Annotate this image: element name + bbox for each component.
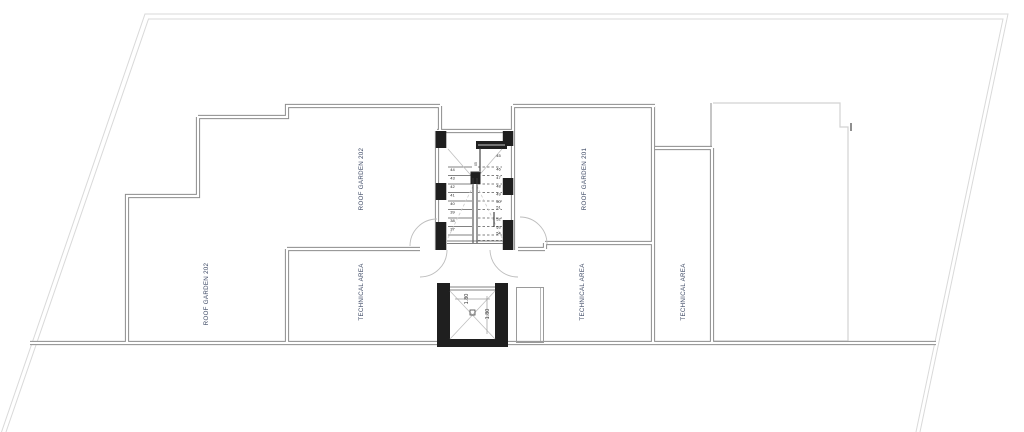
- door-arc-garden-202: [410, 219, 437, 246]
- stair-step-number: 52: [496, 217, 501, 222]
- room-label: ROOF GARDEN 202: [203, 262, 210, 325]
- stair-step-number: 40: [450, 201, 455, 206]
- stair-column: [436, 222, 447, 250]
- stair-step-number: 53: [496, 225, 501, 230]
- elevator-wall-left: [437, 283, 450, 347]
- stair-column: [436, 131, 447, 148]
- stair-direction-mark: 05: [474, 162, 478, 166]
- stair-column: [503, 178, 514, 195]
- stair-step-number: 48: [496, 184, 501, 189]
- door-arc-garden-201: [520, 217, 547, 244]
- stair-step-number: 41: [450, 193, 455, 198]
- neighbor-outline: [711, 103, 851, 341]
- door-arc-landing-left: [420, 250, 447, 277]
- dimension-label: 1.80: [464, 294, 470, 305]
- room-label: TECHNICAL AREA: [579, 263, 586, 321]
- elevator-door-lines: [450, 287, 495, 290]
- room-label: ROOF GARDEN 202: [358, 147, 365, 210]
- stair-step-number: 42: [450, 184, 455, 189]
- stair-break-diagonal-dashed: [448, 182, 502, 238]
- dimension-label: 1.80: [485, 309, 491, 320]
- duct-shaft: [517, 288, 544, 343]
- drawing-canvas: ROOF GARDEN 202ROOF GARDEN 201ROOF GARDE…: [0, 0, 1024, 432]
- floor-plan-svg: ROOF GARDEN 202ROOF GARDEN 201ROOF GARDE…: [0, 0, 1024, 432]
- stair-step-number: 51: [496, 205, 501, 210]
- stair-step-number: 49: [496, 192, 501, 197]
- elevator-wall-bottom: [437, 339, 508, 347]
- stair-step-number: 47: [496, 175, 501, 180]
- room-label: ROOF GARDEN 201: [581, 147, 588, 210]
- stair-step-number: 37: [450, 227, 455, 232]
- door-arc-landing-right: [490, 250, 518, 277]
- stair-step-number: 38: [450, 218, 455, 223]
- stair-step-number: 54: [496, 231, 501, 236]
- stair-step-number: 45: [496, 153, 501, 158]
- room-label: TECHNICAL AREA: [680, 263, 687, 321]
- room-label: TECHNICAL AREA: [358, 263, 365, 321]
- stair-step-number: 50: [496, 199, 501, 204]
- stair-threshold: [447, 241, 503, 244]
- stair-step-number: 46: [496, 167, 501, 172]
- duct-outline: [517, 288, 544, 343]
- elevator-wall-right: [495, 283, 508, 347]
- stair-step-number: 43: [450, 176, 455, 181]
- stair-column: [503, 220, 514, 250]
- stair-column: [436, 183, 447, 200]
- stair-step-number: 39: [450, 210, 455, 215]
- neighbor-outline-path: [713, 103, 848, 341]
- stair-step-number: 44: [450, 167, 455, 172]
- elevator-symbol: [470, 310, 475, 315]
- stair-newel-block: [471, 172, 481, 184]
